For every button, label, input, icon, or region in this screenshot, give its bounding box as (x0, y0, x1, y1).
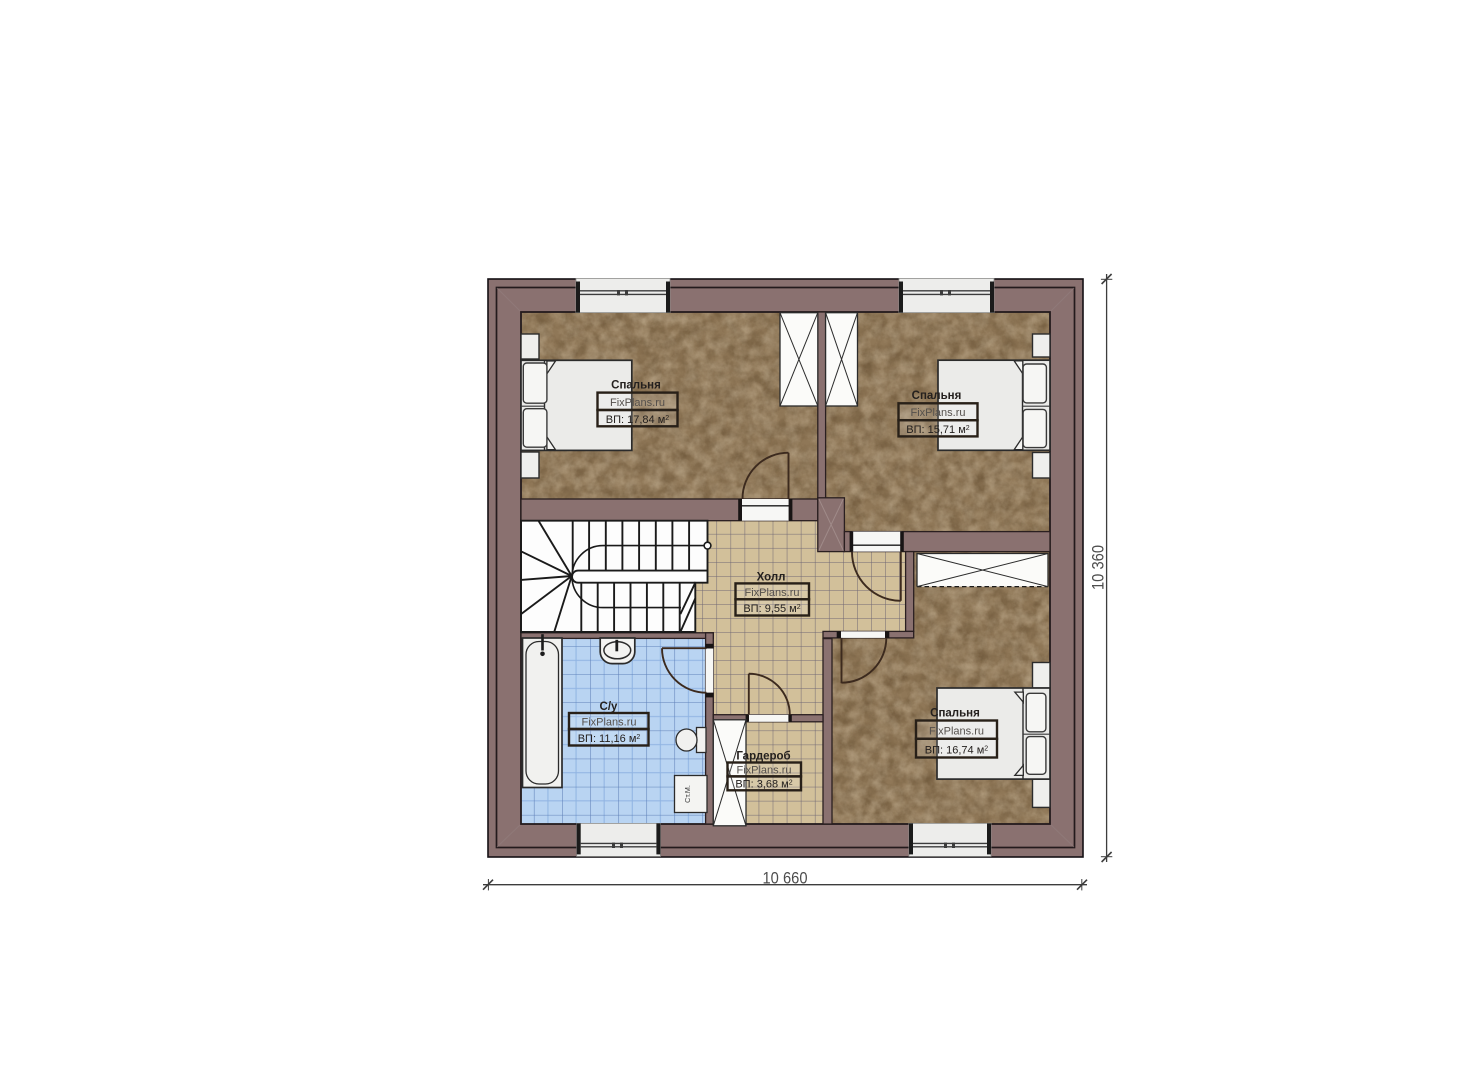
svg-text:FixPlans.ru: FixPlans.ru (736, 765, 791, 777)
svg-text:FixPlans.ru: FixPlans.ru (610, 397, 665, 409)
svg-text:ВП: 17,84 м2: ВП: 17,84 м2 (606, 414, 670, 426)
svg-text:Холл: Холл (757, 571, 786, 583)
svg-text:С/у: С/у (600, 701, 619, 713)
svg-text:ВП: 11,16 м2: ВП: 11,16 м2 (578, 733, 641, 745)
svg-text:Ст.М.: Ст.М. (683, 785, 692, 803)
svg-text:10 360: 10 360 (1089, 545, 1108, 590)
svg-text:FixPlans.ru: FixPlans.ru (929, 725, 984, 737)
svg-text:Спальня: Спальня (930, 708, 980, 720)
svg-text:10 660: 10 660 (763, 869, 808, 888)
svg-text:ВП: 16,74 м2: ВП: 16,74 м2 (925, 744, 989, 756)
svg-text:Спальня: Спальня (912, 390, 962, 402)
svg-text:ВП: 3,68 м2: ВП: 3,68 м2 (735, 779, 792, 791)
svg-text:FixPlans.ru: FixPlans.ru (744, 587, 799, 599)
svg-text:ВП: 9,55 м2: ВП: 9,55 м2 (743, 603, 800, 615)
svg-text:FixPlans.ru: FixPlans.ru (581, 717, 636, 729)
svg-text:Гардероб: Гардероб (736, 750, 790, 762)
svg-text:Спальня: Спальня (611, 380, 661, 392)
svg-text:FixPlans.ru: FixPlans.ru (910, 407, 965, 419)
svg-text:ВП: 15,71 м2: ВП: 15,71 м2 (906, 424, 970, 436)
